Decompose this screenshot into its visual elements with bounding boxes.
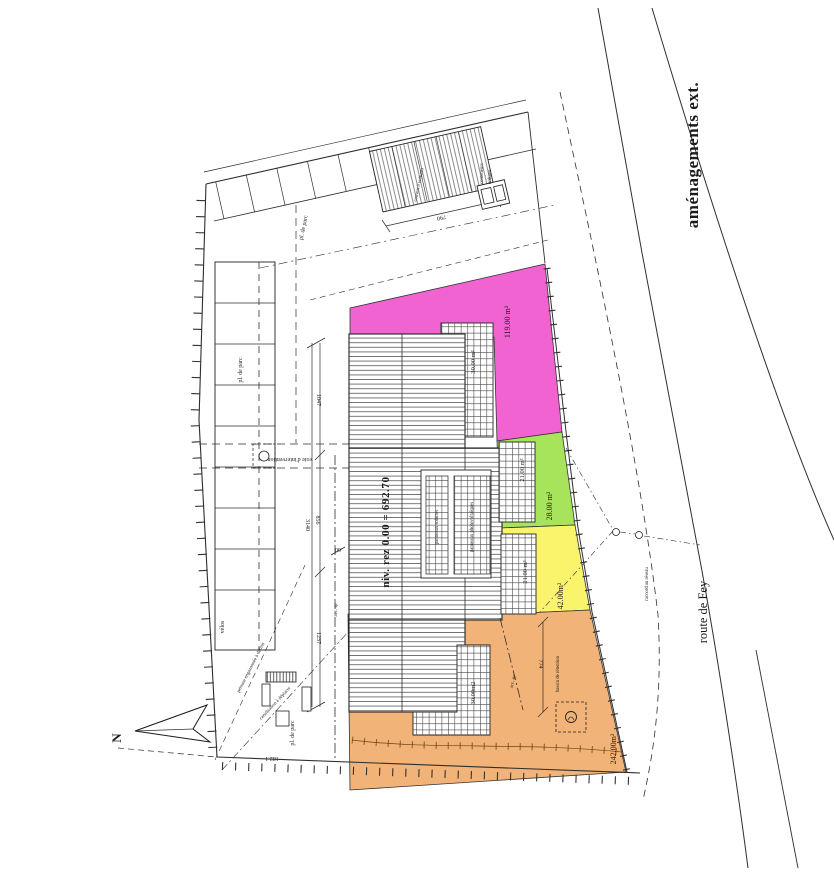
dim-60: 60: [335, 546, 341, 552]
north-arrow-icon: [135, 705, 210, 742]
parking-left-label: pl. de parc: [238, 357, 244, 382]
bikes-label: vélos: [220, 620, 226, 633]
ext-dashed-line: [118, 748, 216, 757]
road-edge-lower: [756, 650, 798, 868]
boundary-topright: [528, 112, 545, 263]
terrace-green-area: 21.00 m²: [519, 458, 526, 481]
terrace-top-area: 30.00 m²: [470, 350, 477, 373]
fire-lane-label: voie d'intervention: [268, 456, 313, 462]
dim-1237: 1237: [315, 632, 321, 644]
terrace-green-grid: [499, 442, 535, 522]
dim-774: 774: [537, 660, 543, 669]
containers-label-2: ordures: [488, 169, 493, 184]
parking-left-column: [215, 262, 275, 650]
parking-top-label: pl. de parc: [298, 215, 309, 241]
zone-orange-area: 242.00m²: [609, 733, 618, 764]
building-lower-hatch: [349, 620, 465, 712]
parking-left-stalls: [215, 303, 275, 590]
access-label-1: acc. sp: [334, 603, 339, 617]
bench-striped: [266, 672, 296, 682]
street-label: route de Fey: [696, 580, 710, 643]
north-arrow: [135, 705, 210, 742]
carport-hatch: [370, 127, 495, 212]
basin-label: bassin de rétention: [556, 655, 561, 692]
terrace-bottom-area: 30.00m2: [470, 682, 477, 705]
level-label: niv. rez 0.00 = 692.70: [380, 476, 392, 587]
annotation-lines: [118, 565, 350, 770]
parking-left-outline: [215, 262, 275, 650]
bench-1: [262, 684, 270, 706]
manhole-icon: [259, 451, 269, 461]
dim-3140: 3140: [304, 519, 310, 531]
building-upper-hatch: [349, 334, 465, 448]
terrace-yellow-grid: [501, 534, 536, 614]
network-label: raccord au réseau: [645, 567, 650, 601]
bench-3: [302, 687, 311, 711]
slope-ticks-west: [195, 200, 213, 750]
dim-bottom: 182.1: [265, 755, 279, 761]
note-b-line: [222, 630, 350, 770]
bench-2: [276, 711, 289, 726]
terrace-yellow-area: 21.00 m²: [522, 560, 529, 583]
dim-856: 856: [314, 516, 320, 525]
site-plan-drawing: aménagements ext. route de Fey N niv. re…: [0, 0, 834, 873]
fire-lane-box: [253, 444, 275, 468]
road-edge-east: [652, 8, 834, 540]
road-edge-west: [598, 8, 748, 868]
photovoltaic-label: panneaux photovoltaïques: [470, 502, 475, 552]
plan-title: aménagements ext.: [683, 82, 702, 228]
zone-green-area: 28.00 m²: [545, 491, 554, 520]
zone-pink-area: 119.00 m²: [503, 305, 512, 338]
zone-yellow-area: 42.00m²: [556, 582, 565, 609]
solar-label: panneaux solaires: [435, 510, 440, 544]
boundary-west: [199, 184, 217, 757]
dim-1047: 1047: [315, 394, 321, 406]
site-plan-canvas: aménagements ext. route de Fey N niv. re…: [0, 0, 834, 873]
manhole-1-icon: [613, 529, 620, 536]
parking-bottom-label: pl. de parc: [290, 720, 296, 745]
manhole-2-icon: [636, 532, 643, 539]
north-label: N: [109, 733, 124, 743]
containers-label-1: conteneurs: [480, 163, 485, 184]
fire-lane-edges: [199, 444, 349, 468]
